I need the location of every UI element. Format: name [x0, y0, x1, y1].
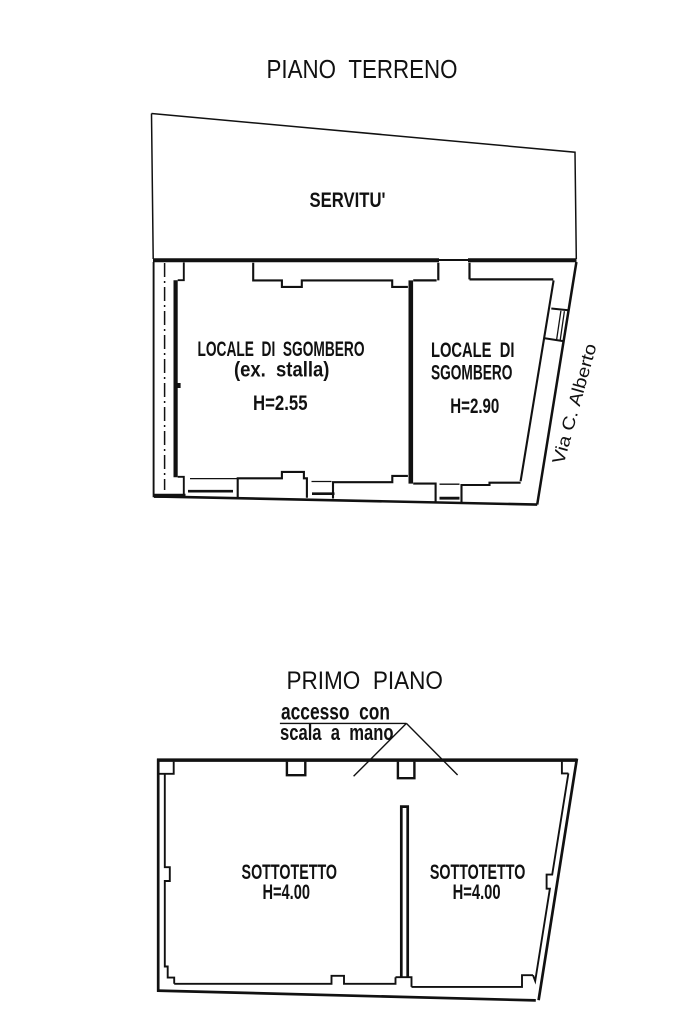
svg-text:H=2.55: H=2.55 [253, 392, 308, 415]
svg-text:SGOMBERO: SGOMBERO [431, 362, 513, 385]
svg-text:PRIMO PIANO: PRIMO PIANO [286, 667, 443, 695]
svg-text:(ex. stalla): (ex. stalla) [234, 359, 330, 382]
svg-text:H=4.00: H=4.00 [453, 881, 501, 904]
svg-text:H=4.00: H=4.00 [262, 881, 310, 904]
svg-text:PIANO TERRENO: PIANO TERRENO [267, 54, 458, 84]
svg-text:LOCALE DI: LOCALE DI [431, 339, 515, 362]
svg-text:H=2.90: H=2.90 [450, 395, 499, 418]
svg-text:SERVITU': SERVITU' [310, 189, 386, 212]
svg-text:Via C. Alberto: Via C. Alberto [548, 341, 600, 466]
